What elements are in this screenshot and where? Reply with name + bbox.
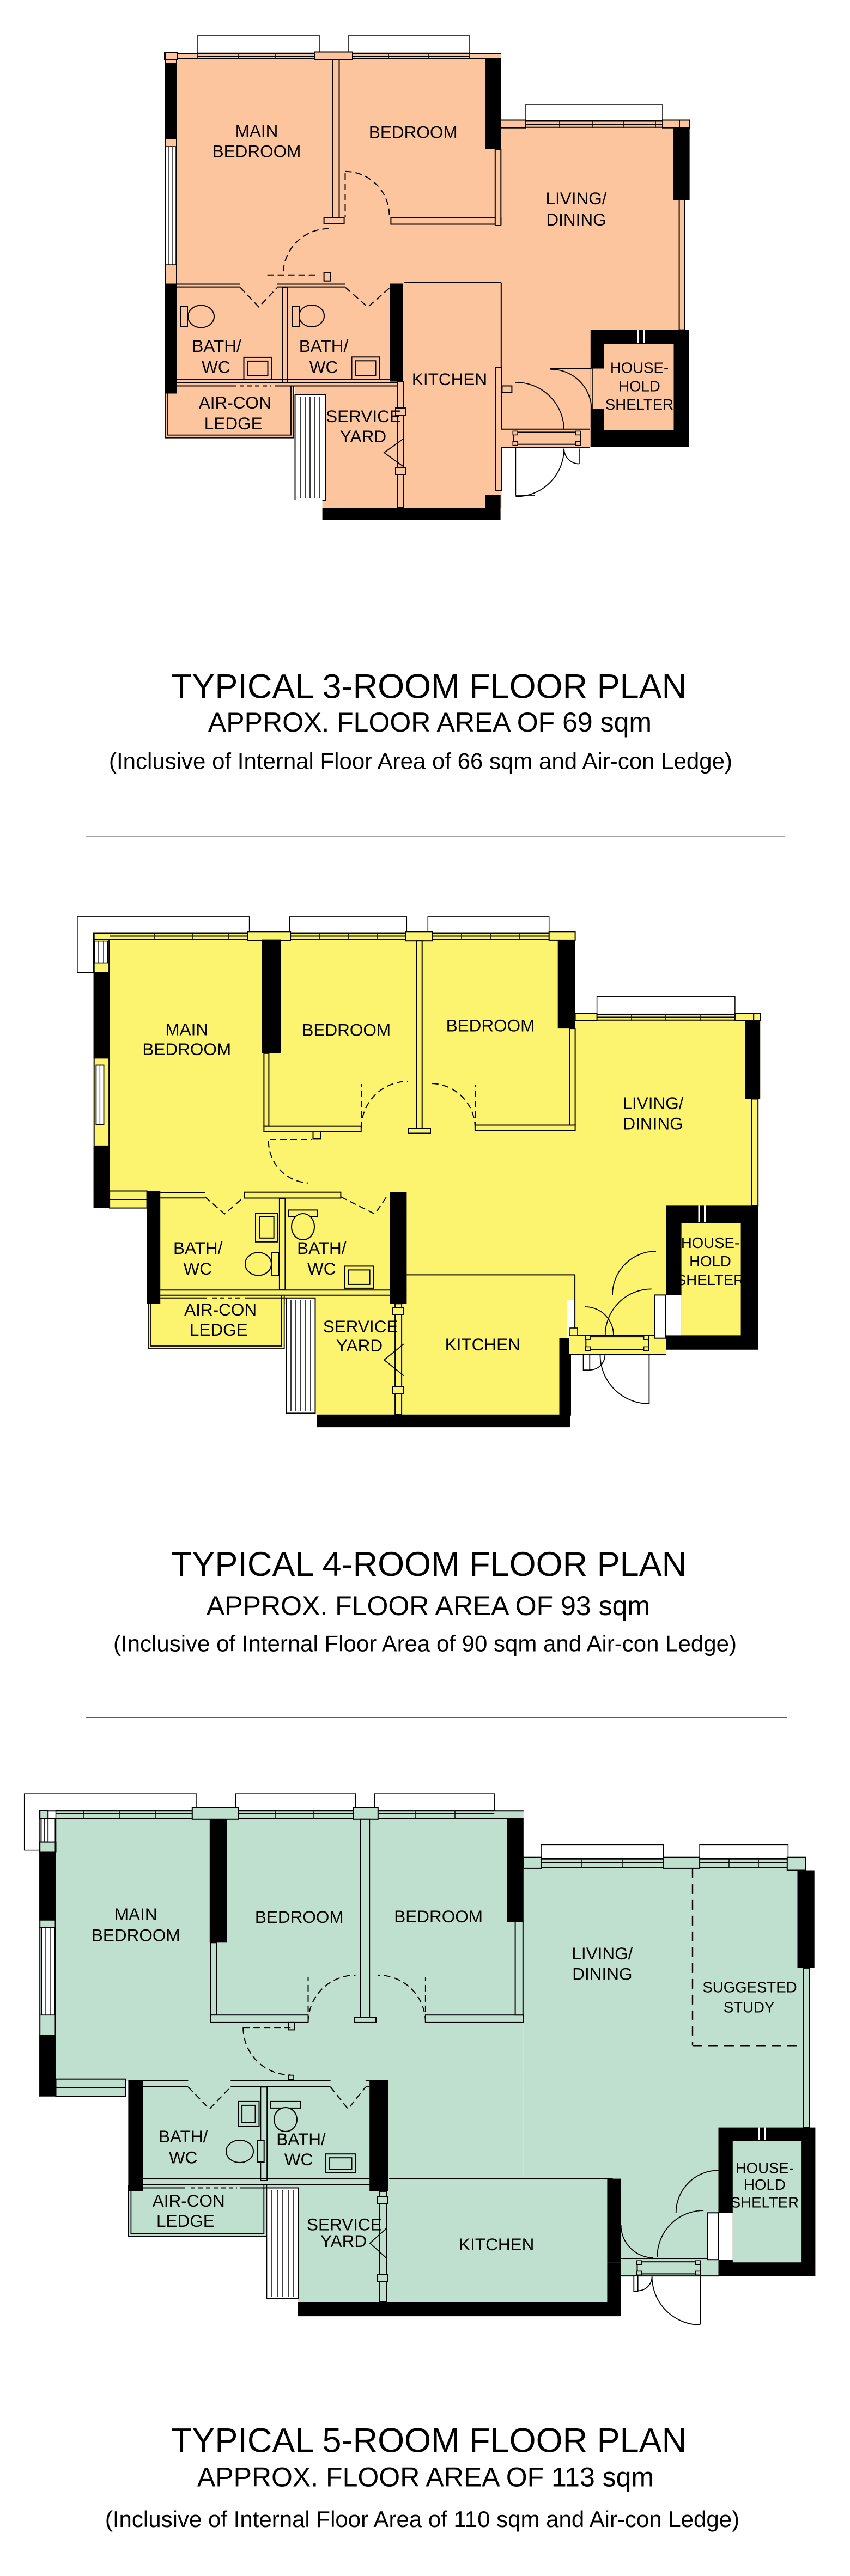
svg-text:KITCHEN: KITCHEN <box>412 369 487 389</box>
svg-text:SERVICE: SERVICE <box>326 406 401 426</box>
svg-text:BATH/: BATH/ <box>173 1238 223 1258</box>
svg-text:WC: WC <box>184 1259 212 1278</box>
svg-text:BEDROOM: BEDROOM <box>255 1907 344 1927</box>
svg-text:SHELTER: SHELTER <box>731 2194 799 2211</box>
svg-text:TYPICAL 4-ROOM FLOOR PLAN: TYPICAL 4-ROOM FLOOR PLAN <box>171 1545 687 1584</box>
svg-text:LEDGE: LEDGE <box>156 2211 215 2231</box>
svg-text:(Inclusive of Internal Floor A: (Inclusive of Internal Floor Area of 110… <box>105 2506 739 2532</box>
svg-text:HOLD: HOLD <box>618 377 660 394</box>
svg-text:(Inclusive of Internal Floor A: (Inclusive of Internal Floor Area of 90 … <box>113 1631 737 1657</box>
svg-text:BEDROOM: BEDROOM <box>92 1926 180 1945</box>
svg-text:TYPICAL 3-ROOM FLOOR PLAN: TYPICAL 3-ROOM FLOOR PLAN <box>171 668 687 706</box>
svg-text:WC: WC <box>309 357 338 377</box>
svg-text:BATH/: BATH/ <box>299 336 349 356</box>
svg-text:BATH/: BATH/ <box>276 2129 326 2149</box>
svg-text:LIVING/: LIVING/ <box>622 1093 683 1113</box>
svg-text:MAIN: MAIN <box>165 1020 208 1039</box>
svg-text:BATH/: BATH/ <box>297 1238 347 1258</box>
svg-text:MAIN: MAIN <box>114 1904 157 1924</box>
svg-text:SERVICE: SERVICE <box>323 1317 398 1336</box>
svg-text:DINING: DINING <box>546 210 606 229</box>
svg-text:AIR-CON: AIR-CON <box>199 393 271 412</box>
svg-text:WC: WC <box>307 1259 336 1278</box>
svg-text:STUDY: STUDY <box>724 1999 775 2016</box>
svg-text:HOLD: HOLD <box>689 1253 731 1270</box>
svg-text:(Inclusive of Internal Floor A: (Inclusive of Internal Floor Area of 66 … <box>109 748 732 774</box>
svg-text:YARD: YARD <box>340 427 386 446</box>
svg-text:BEDROOM: BEDROOM <box>142 1039 231 1059</box>
svg-text:WC: WC <box>284 2149 313 2169</box>
svg-text:AIR-CON: AIR-CON <box>153 2191 225 2210</box>
svg-text:HOUSE-: HOUSE- <box>681 1234 739 1251</box>
svg-text:BEDROOM: BEDROOM <box>302 1020 391 1039</box>
svg-text:APPROX. FLOOR AREA OF 69 sqm: APPROX. FLOOR AREA OF 69 sqm <box>208 707 652 738</box>
svg-text:APPROX. FLOOR AREA OF 93 sqm: APPROX. FLOOR AREA OF 93 sqm <box>207 1591 650 1621</box>
svg-text:DINING: DINING <box>623 1113 683 1133</box>
svg-text:HOUSE-: HOUSE- <box>736 2160 794 2177</box>
svg-text:DINING: DINING <box>572 1964 632 1984</box>
svg-text:TYPICAL 5-ROOM FLOOR PLAN: TYPICAL 5-ROOM FLOOR PLAN <box>171 2422 687 2460</box>
svg-text:APPROX. FLOOR AREA OF 113 sqm: APPROX. FLOOR AREA OF 113 sqm <box>197 2462 654 2493</box>
svg-text:BEDROOM: BEDROOM <box>369 123 458 142</box>
svg-text:LEDGE: LEDGE <box>190 1320 248 1339</box>
svg-text:BATH/: BATH/ <box>192 336 241 356</box>
svg-text:KITCHEN: KITCHEN <box>445 1335 520 1354</box>
svg-text:BEDROOM: BEDROOM <box>394 1907 483 1926</box>
svg-text:LIVING/: LIVING/ <box>545 188 606 208</box>
svg-text:AIR-CON: AIR-CON <box>184 1300 257 1319</box>
svg-text:HOLD: HOLD <box>744 2176 786 2193</box>
svg-text:LEDGE: LEDGE <box>204 413 263 433</box>
svg-text:WC: WC <box>169 2148 197 2167</box>
svg-text:SHELTER: SHELTER <box>676 1271 744 1288</box>
svg-text:BEDROOM: BEDROOM <box>446 1016 535 1036</box>
svg-text:LIVING/: LIVING/ <box>572 1944 633 1963</box>
svg-text:YARD: YARD <box>336 1336 382 1355</box>
svg-text:MAIN: MAIN <box>235 121 278 141</box>
svg-text:HOUSE-: HOUSE- <box>610 359 669 376</box>
svg-text:SUGGESTED: SUGGESTED <box>702 1979 797 1996</box>
svg-text:WC: WC <box>202 357 230 377</box>
svg-text:BEDROOM: BEDROOM <box>212 141 301 161</box>
svg-text:YARD: YARD <box>320 2231 367 2251</box>
svg-text:SHELTER: SHELTER <box>605 396 673 413</box>
svg-text:BATH/: BATH/ <box>159 2127 208 2146</box>
svg-text:KITCHEN: KITCHEN <box>459 2234 534 2254</box>
